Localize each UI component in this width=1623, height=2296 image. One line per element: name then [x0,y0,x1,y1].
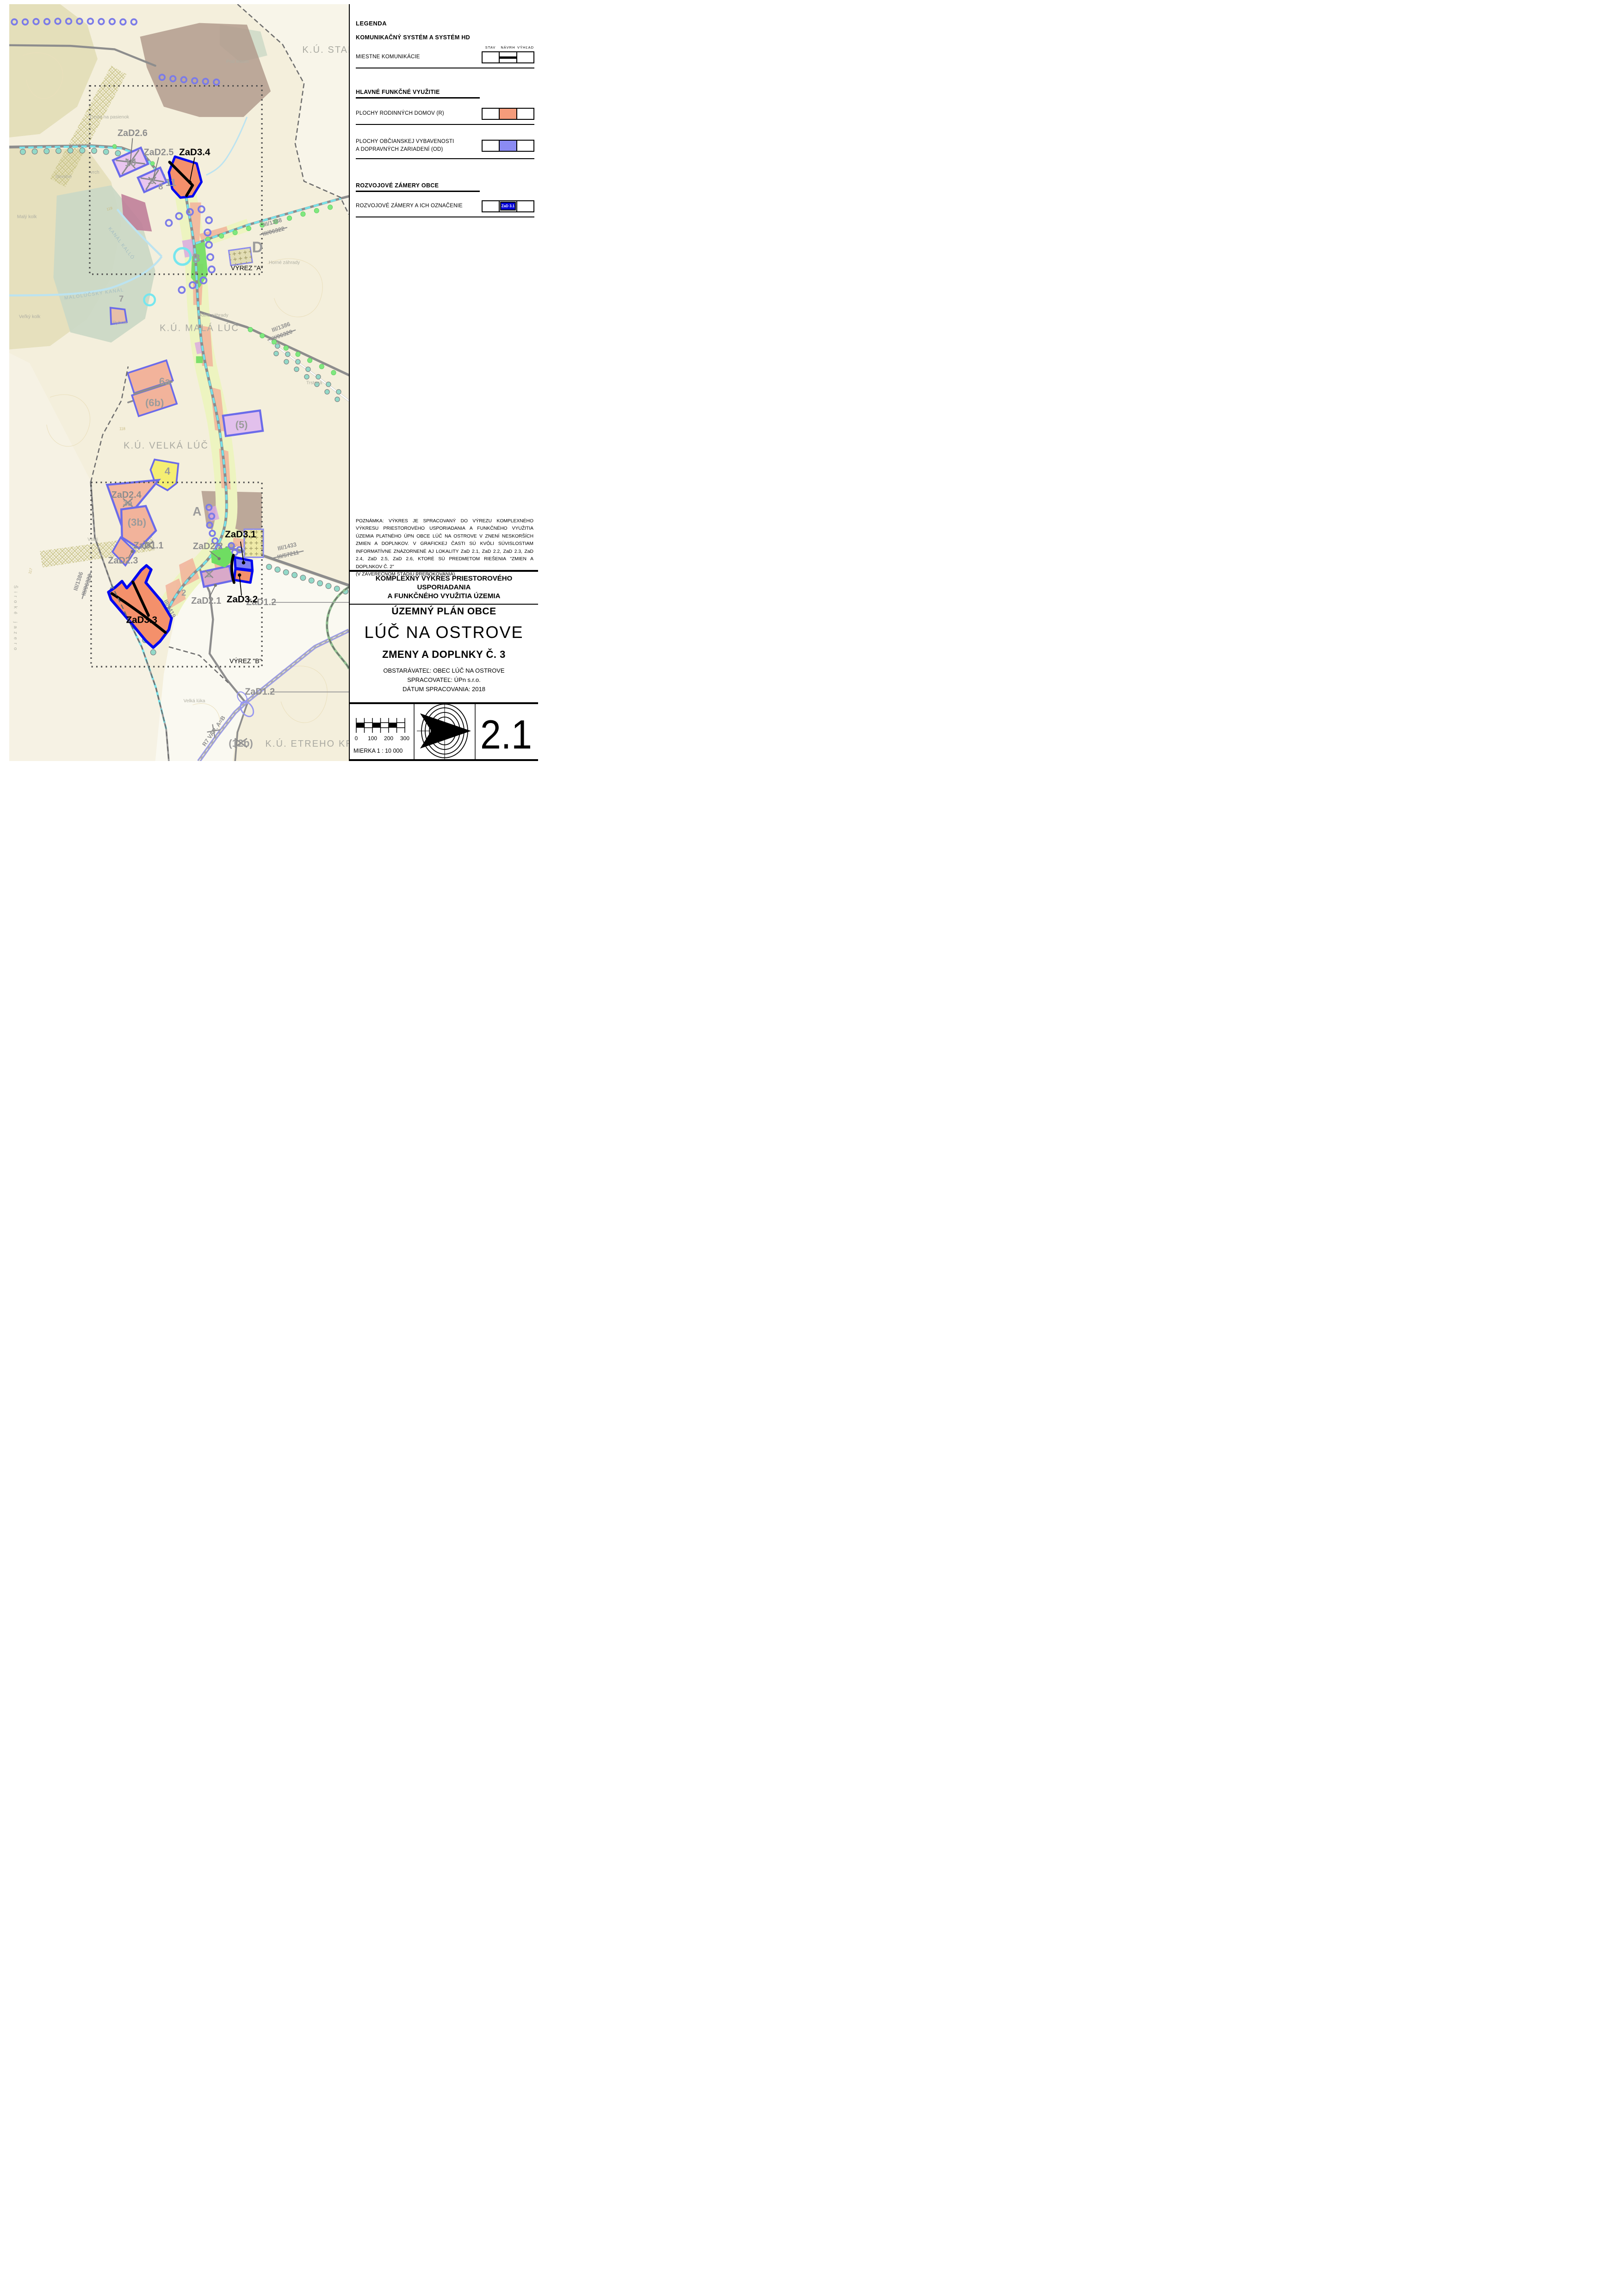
label-vrch: vrch [90,170,99,175]
label-letter-d: D [252,239,263,256]
label-zad3-1: ZaD3.1 [225,529,256,540]
legend-swatch-r [482,108,534,120]
amendment-title: ZMENY A DOPLNKY Č. 3 [350,649,538,661]
label-zad2-2: ZaD2.2 [193,541,223,551]
label-ku-velka: K.Ú. VELKÁ LÚČ [124,440,209,451]
drawing-title-line1: KOMPLEXNÝ VÝKRES PRIESTOROVÉHO [352,575,536,583]
legend-row-label: MIESTNE KOMUNIKÁCIE [356,53,420,61]
swatch-cell-stav [483,141,500,151]
label-velky-kolk: Veľký kolk [19,314,41,319]
scale-tick-100: 100 [368,735,377,742]
legend-col-vyhlad: VÝHĽAD [517,45,534,50]
label-ku-etreho: K.Ú. ETREHO KRAČA [265,738,349,749]
label-n3a: 3a [123,498,133,508]
north-arrow [417,704,471,759]
legend-section-komunikacny: KOMUNIKAČNÝ SYSTÉM A SYSTÉM HD STAV NÁVR… [356,34,534,68]
label-siroke-jazero: Široké jazero [12,585,19,653]
label-letter-a: A [192,504,201,518]
swatch-cell-navrh [500,52,517,62]
swatch-cell-vyhlad [517,109,533,119]
label-trstena: Trstená [306,381,322,386]
label-letter-b: B [192,252,200,265]
legend-title: LEGENDA [356,20,534,27]
project-title-block: ÚZEMNÝ PLÁN OBCE LÚČ NA OSTROVE ZMENY A … [350,592,538,702]
label-n6a: 6a [159,376,171,387]
label-horne-zahrady: Horné záhrady [269,260,300,266]
plan-type: ÚZEMNÝ PLÁN OBCE [350,606,538,617]
label-contour-118: 118 [119,427,125,431]
label-n3b: (3b) [128,517,146,528]
legend-col-stav: STAV [482,45,499,50]
info-panel: LEGENDA KOMUNIKAČNÝ SYSTÉM A SYSTÉM HD S… [349,4,538,761]
plan-sheet: K.Ú. STARÁ K.Ú. MALÁ LÚČ K.Ú. VELKÁ LÚČ … [0,0,541,765]
label-zad3-3: ZaD3.3 [126,614,157,625]
label-zad1-2b: ZaD1.2 [245,687,275,697]
swatch-cell-vyhlad [517,52,533,62]
legend-swatch-zad: ZaD 3.1 [482,200,534,212]
legend: LEGENDA KOMUNIKAČNÝ SYSTÉM A SYSTÉM HD S… [356,20,534,217]
legend-section-title: HLAVNÉ FUNKČNÉ VYUŽITIE [356,89,480,99]
legend-section-title: ROZVOJOVÉ ZÁMERY OBCE [356,182,480,192]
legend-columns: STAV NÁVRH VÝHĽAD [356,45,534,50]
label-n6b: (6b) [145,397,164,408]
label-n12b: (12b) [229,737,253,749]
swatch-cell-navrh: ZaD 3.1 [500,201,517,211]
sheet-number: 2.1 [480,712,532,757]
label-n2b: 2 [181,588,186,597]
label-line2: A DOPRAVNÝCH ZARIADENÍ (OD) [356,147,443,152]
label-n5: (5) [235,419,248,430]
scale-tick-300: 300 [400,735,409,742]
legend-col-navrh: NÁVRH [499,45,517,50]
label-n8: 8 [158,181,163,191]
author-line: SPRACOVATEĽ: ÚPn s.r.o. [350,675,538,685]
note-block: POZNÁMKA: VÝKRES JE SPRACOVANÝ DO VÝREZU… [356,518,533,579]
label-n7: 7 [119,294,124,303]
municipality-name: LÚČ NA OSTROVE [350,623,538,642]
footer-block: 0 100 200 300 MIERKA 1 : 10 000 [350,702,538,761]
map-area: K.Ú. STARÁ K.Ú. MALÁ LÚČ K.Ú. VELKÁ LÚČ … [9,4,349,761]
note-text: POZNÁMKA: VÝKRES JE SPRACOVANÝ DO VÝREZU… [356,519,533,569]
swatch-cell-vyhlad [517,201,533,211]
legend-section-title: KOMUNIKAČNÝ SYSTÉM A SYSTÉM HD [356,34,534,41]
label-pod-lesom: Pod lesom [226,59,248,64]
legend-section-funkcne: HLAVNÉ FUNKČNÉ VYUŽITIE PLOCHY RODINNÝCH… [356,88,534,159]
label-vyrez-b: VÝREZ "B" [229,657,262,665]
green-patch-mid [196,356,203,363]
swatch-cell-stav [483,52,500,62]
legend-row-label: ROZVOJOVÉ ZÁMERY A ICH OZNAČENIE [356,202,463,210]
label-n2a: 2 [206,569,211,579]
label-n10: 10 [125,157,136,168]
scale-bar: 0 100 200 300 MIERKA 1 : 10 000 [353,718,409,754]
label-zad2-3: ZaD2.3 [108,556,138,566]
legend-row-rodinne-domy: PLOCHY RODINNÝCH DOMOV (R) [356,107,534,125]
label-vyrez-a: VÝREZ "A" [231,264,263,272]
swatch-cell-vyhlad [517,141,533,151]
legend-row-label: PLOCHY RODINNÝCH DOMOV (R) [356,110,444,118]
legend-section-rozvojove: ROZVOJOVÉ ZÁMERY OBCE ROZVOJOVÉ ZÁMERY A… [356,181,534,217]
footer-canvas: 0 100 200 300 MIERKA 1 : 10 000 [350,704,538,759]
label-ku-mala: K.Ú. MALÁ LÚČ [160,322,239,333]
label-n9: 9 [150,176,155,186]
swatch-cell-navrh [500,141,517,151]
label-dolne-zahrady: Dolné záhrady [198,313,229,318]
legend-swatch-road [482,51,534,63]
label-n4: 4 [165,465,171,477]
label-zad3-4: ZaD3.4 [179,147,211,158]
legend-row-obcianska-vybavenost: PLOCHY OBČIANSKEJ VYBAVENOSTI A DOPRAVNÝ… [356,137,534,159]
label-zad3-2: ZaD3.2 [227,594,258,605]
date-line: DÁTUM SPRACOVANIA: 2018 [350,685,538,694]
drawing-title-line2: USPORIADANIA [352,583,536,592]
label-velka-luka: Velká lúka [184,699,205,704]
zad-box-symbol: ZaD 3.1 [500,202,516,210]
legend-row-label: PLOCHY OBČIANSKEJ VYBAVENOSTI A DOPRAVNÝ… [356,138,454,154]
scale-label: MIERKA 1 : 10 000 [353,748,403,754]
label-rybnik: Rybník [112,321,128,326]
label-zad2-6: ZaD2.6 [118,128,148,138]
label-maly-kolk: Malý kolk [17,215,37,220]
map-canvas: K.Ú. STARÁ K.Ú. MALÁ LÚČ K.Ú. VELKÁ LÚČ … [9,4,349,761]
swatch-cell-stav [483,201,500,211]
label-stredne: Stredné [55,174,72,179]
label-ku-stara: K.Ú. STARÁ [302,44,349,55]
label-vtaci: Vtáči [87,537,98,542]
scale-tick-0: 0 [355,735,358,742]
road-line-symbol [500,56,516,59]
legend-swatch-od [482,140,534,152]
swatch-cell-stav [483,109,500,119]
legend-row-rozvojove-zamery: ROZVOJOVÉ ZÁMERY A ICH OZNAČENIE ZaD 3.1 [356,199,534,217]
label-zad2-5: ZaD2.5 [143,148,173,158]
label-cesta: Cesta na pasienok [90,115,130,120]
label-n11: 11 [166,177,176,188]
swatch-cell-navrh [500,109,517,119]
label-line1: PLOCHY OBČIANSKEJ VYBAVENOSTI [356,139,454,144]
legend-row-miestne-komunikacie: MIESTNE KOMUNIKÁCIE [356,50,534,68]
client-line: OBSTARÁVATEĽ: OBEC LÚČ NA OSTROVE [350,666,538,675]
label-zad1-1: ZaD1.1 [133,540,163,551]
scale-tick-200: 200 [384,735,393,742]
label-zad2-1: ZaD2.1 [191,596,221,606]
